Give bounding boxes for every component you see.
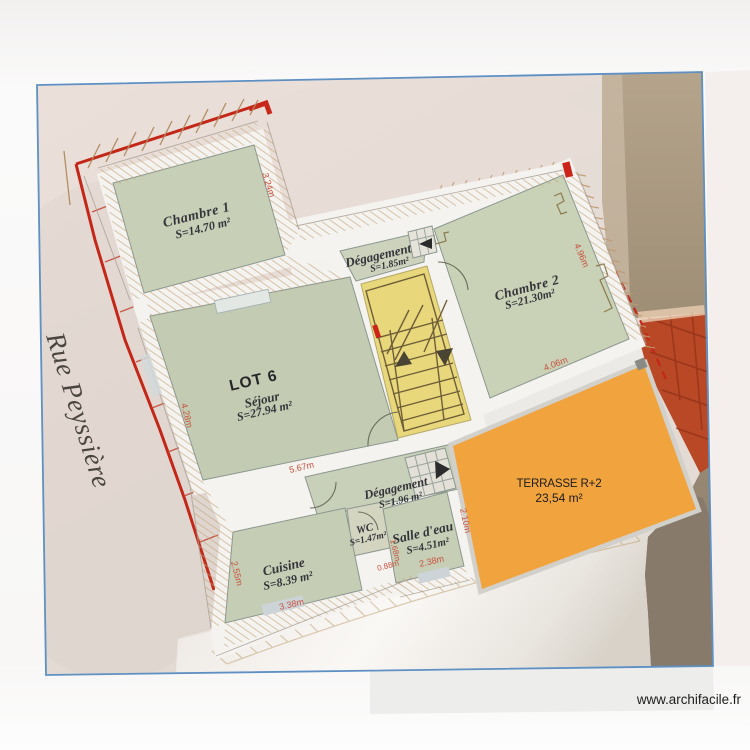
svg-text:TERRASSE R+2: TERRASSE R+2	[517, 477, 602, 490]
svg-text:23,54 m²: 23,54 m²	[535, 491, 582, 505]
svg-text:www.archifacile.fr: www.archifacile.fr	[636, 692, 742, 707]
